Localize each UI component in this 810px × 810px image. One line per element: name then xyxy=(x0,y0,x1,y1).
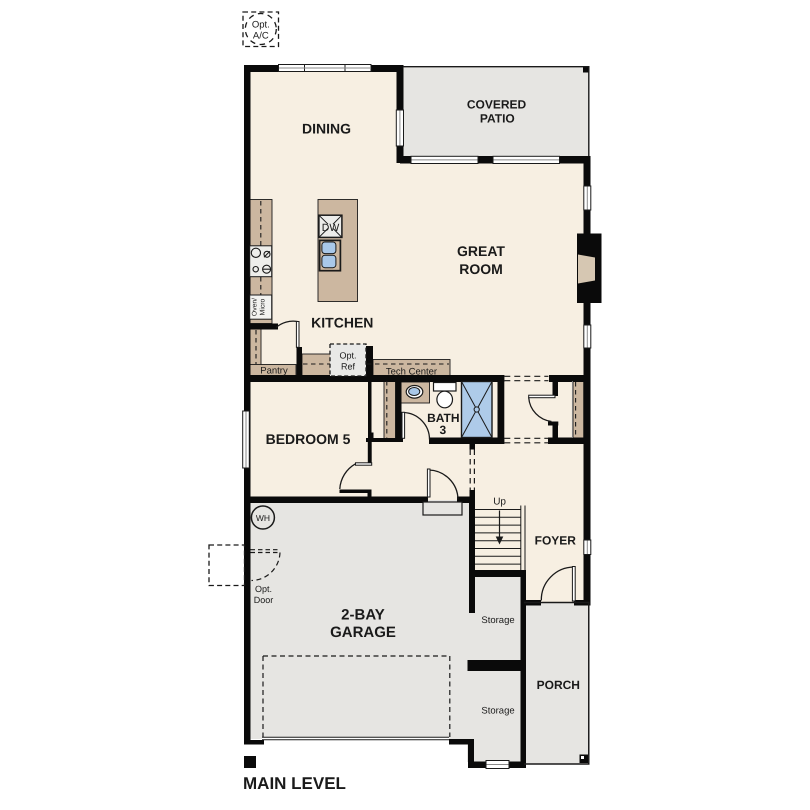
svg-text:MAIN LEVEL: MAIN LEVEL xyxy=(243,774,346,793)
svg-text:Micro: Micro xyxy=(260,298,267,315)
svg-text:PATIO: PATIO xyxy=(480,112,515,126)
svg-text:2-BAY: 2-BAY xyxy=(341,607,385,624)
svg-text:GREAT: GREAT xyxy=(457,243,505,259)
svg-text:ROOM: ROOM xyxy=(459,261,503,277)
svg-text:Opt.: Opt. xyxy=(255,584,272,594)
svg-text:3: 3 xyxy=(439,423,446,437)
svg-text:Pantry: Pantry xyxy=(260,366,288,377)
svg-text:Tech Center: Tech Center xyxy=(386,367,437,378)
svg-text:FOYER: FOYER xyxy=(535,534,577,548)
svg-text:BEDROOM 5: BEDROOM 5 xyxy=(266,431,351,447)
svg-text:Door: Door xyxy=(254,595,274,605)
svg-text:WH: WH xyxy=(256,513,270,523)
svg-text:Up: Up xyxy=(493,497,506,508)
svg-text:Ref: Ref xyxy=(341,362,356,372)
svg-text:DINING: DINING xyxy=(302,121,351,137)
svg-text:Storage: Storage xyxy=(481,615,514,626)
svg-text:COVERED: COVERED xyxy=(467,98,527,112)
svg-text:PORCH: PORCH xyxy=(537,678,580,692)
svg-text:A/C: A/C xyxy=(253,31,269,42)
svg-text:DW: DW xyxy=(322,222,340,234)
svg-text:Opt.: Opt. xyxy=(339,351,356,361)
svg-text:Storage: Storage xyxy=(481,706,514,717)
svg-text:GARAGE: GARAGE xyxy=(330,624,396,641)
svg-text:Oven/: Oven/ xyxy=(252,298,259,316)
svg-text:KITCHEN: KITCHEN xyxy=(311,315,373,331)
svg-text:Opt.: Opt. xyxy=(252,20,270,31)
